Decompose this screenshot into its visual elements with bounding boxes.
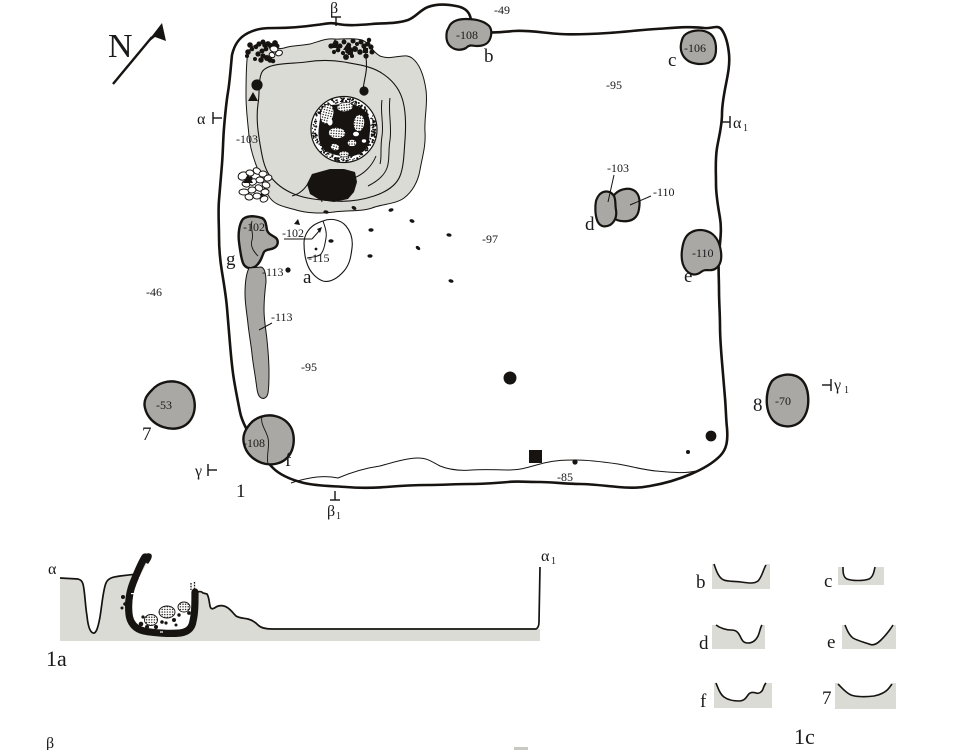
svg-text:g: g (226, 249, 236, 270)
svg-text:c: c (668, 50, 676, 71)
svg-text:d: d (585, 214, 595, 235)
svg-text:e: e (684, 266, 692, 287)
svg-text:1: 1 (743, 123, 748, 134)
svg-text:1a: 1a (46, 646, 67, 671)
svg-text:1: 1 (336, 511, 341, 522)
svg-text:a: a (303, 267, 312, 288)
svg-text:1: 1 (551, 556, 556, 567)
svg-text:-110: -110 (692, 246, 714, 260)
svg-text:-103: -103 (607, 161, 629, 175)
svg-text:-70: -70 (775, 394, 791, 408)
svg-text:1c: 1c (794, 724, 815, 749)
svg-text:-102: -102 (243, 220, 265, 234)
svg-text:α: α (541, 548, 550, 565)
svg-text:b: b (696, 572, 706, 593)
svg-text:1: 1 (844, 385, 849, 396)
svg-text:f: f (700, 691, 707, 712)
svg-text:c: c (824, 571, 832, 592)
svg-text:-95: -95 (606, 78, 622, 92)
svg-text:α: α (197, 111, 206, 128)
svg-text:-53: -53 (156, 398, 172, 412)
svg-text:γ: γ (833, 377, 841, 394)
svg-text:-102: -102 (282, 226, 304, 240)
svg-text:7: 7 (142, 424, 152, 445)
svg-text:d: d (699, 633, 709, 654)
svg-text:-108: -108 (243, 436, 265, 450)
svg-text:β: β (46, 735, 54, 750)
svg-text:-49: -49 (494, 3, 510, 17)
svg-text:α: α (733, 115, 742, 132)
svg-text:N: N (108, 28, 133, 65)
svg-text:-110: -110 (653, 185, 675, 199)
svg-text:8: 8 (753, 395, 763, 416)
svg-text:-113: -113 (262, 265, 284, 279)
svg-text:b: b (484, 46, 494, 67)
svg-text:-115: -115 (308, 251, 330, 265)
svg-text:7: 7 (822, 688, 832, 709)
svg-text:-106: -106 (684, 41, 706, 55)
svg-text:β: β (327, 503, 335, 520)
svg-text:-113: -113 (271, 310, 293, 324)
svg-text:γ: γ (194, 463, 202, 480)
svg-text:-97: -97 (482, 232, 498, 246)
svg-text:β: β (330, 0, 338, 17)
svg-text:-46: -46 (146, 285, 162, 299)
svg-text:α: α (48, 561, 57, 578)
svg-text:-103: -103 (236, 132, 258, 146)
svg-text:1: 1 (236, 481, 246, 502)
svg-text:-108: -108 (456, 28, 478, 42)
svg-text:f: f (285, 450, 292, 471)
svg-text:e: e (827, 632, 835, 653)
svg-text:-95: -95 (301, 360, 317, 374)
svg-text:-85: -85 (557, 470, 573, 484)
